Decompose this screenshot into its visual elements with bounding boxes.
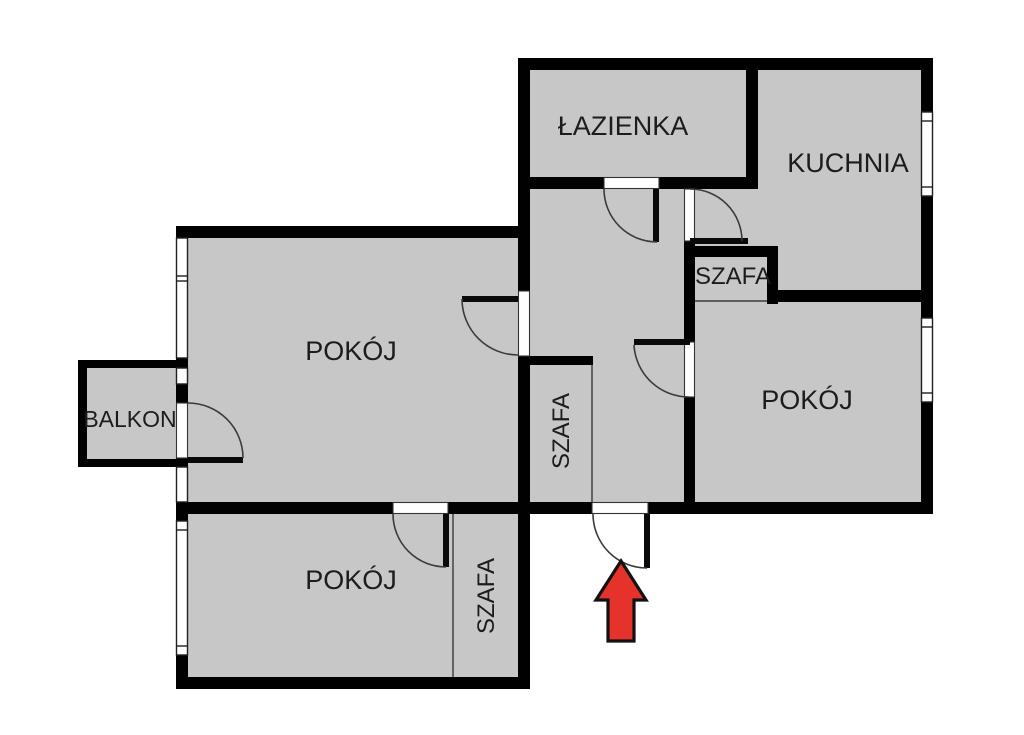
door-opening-pokoj-bottom (393, 503, 448, 514)
label-szafa-top: SZAFA (695, 263, 771, 290)
door-opening-entry (592, 503, 648, 514)
entrance-arrow-icon (596, 561, 646, 641)
door-leaf-pokoj-right (634, 339, 690, 345)
door-leaf-lazienka (653, 189, 659, 242)
window-pokoj-large (177, 238, 188, 358)
door-leaf-pokoj-large (462, 296, 518, 302)
door-leaf-pokoj-bottom (443, 514, 449, 567)
label-kuchnia: KUCHNIA (787, 148, 909, 178)
floorplan: ŁAZIENKA KUCHNIA SZAFA POKÓJ BALKON POKÓ… (0, 0, 1024, 735)
window-pokoj-right (922, 318, 933, 402)
wall-balkon-top (78, 360, 182, 368)
floor-bottom-block (182, 509, 523, 683)
label-lazienka: ŁAZIENKA (558, 111, 689, 141)
window-pokoj-bottom (177, 521, 188, 655)
floor-pokoj-large (182, 231, 523, 509)
wall-szafa-hall-top (518, 356, 593, 365)
wall-pokoj-large-top (176, 226, 530, 238)
wall-lazienka-right (746, 58, 758, 189)
door-leaf-kuchnia (690, 238, 748, 244)
door-opening-pokoj-right (685, 342, 695, 397)
window-kuchnia (922, 112, 933, 196)
wall-spine (518, 58, 530, 689)
wall-szafa-top-top (684, 246, 778, 257)
wall-main-horizontal (176, 502, 933, 514)
window-left-below-balkon (177, 467, 188, 502)
label-szafa-hall: SZAFA (548, 393, 575, 469)
label-pokoj-bottom: POKÓJ (305, 564, 397, 595)
wall-balkon-bottom (78, 459, 182, 467)
label-szafa-bottom: SZAFA (473, 558, 500, 634)
door-opening-pokoj-large (519, 291, 530, 356)
door-leaf-balkon (188, 457, 243, 463)
label-pokoj-large: POKÓJ (305, 335, 397, 366)
door-opening-balkon (177, 403, 188, 458)
door-opening-lazienka (604, 178, 659, 189)
wall-bottom (176, 677, 530, 689)
label-pokoj-right: POKÓJ (761, 384, 853, 415)
label-balkon: BALKON (83, 406, 176, 432)
window-left-sidelight (177, 368, 188, 384)
wall-kuchnia-bottom (767, 290, 933, 302)
wall-top (518, 58, 933, 70)
door-opening-kuchnia (685, 189, 695, 241)
door-leaf-entry (644, 514, 650, 568)
